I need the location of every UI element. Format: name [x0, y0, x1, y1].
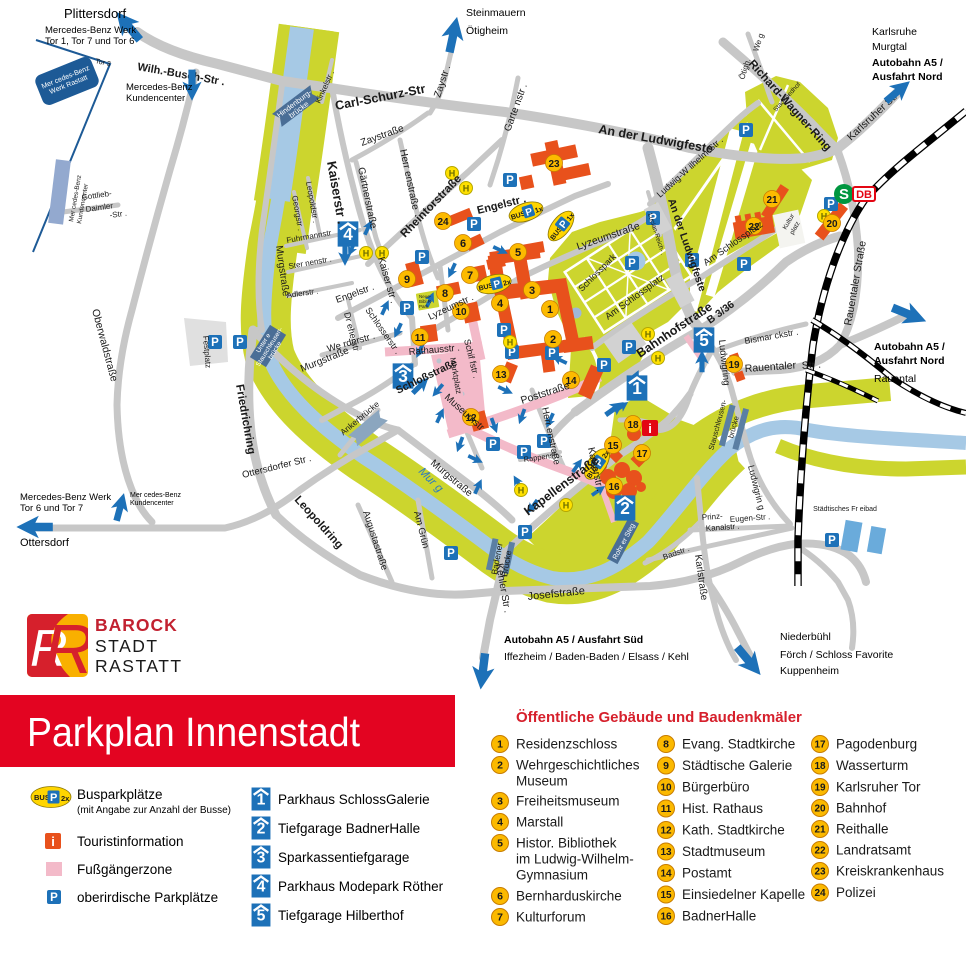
svg-text:Pagodenburg: Pagodenburg [836, 737, 917, 752]
svg-text:Kath. Stadtkirche: Kath. Stadtkirche [682, 823, 785, 838]
svg-text:Murgtal: Murgtal [872, 41, 907, 53]
svg-text:Förch / Schloss Favorite: Förch / Schloss Favorite [780, 649, 893, 661]
svg-text:20: 20 [814, 804, 826, 815]
svg-text:Str .: Str . [801, 359, 821, 372]
svg-text:23: 23 [814, 867, 826, 878]
svg-text:2: 2 [257, 820, 266, 837]
svg-text:Öffentliche Gebäude und Bauden: Öffentliche Gebäude und Baudenkmäler [516, 709, 802, 726]
svg-text:Städtisches Fr eibad: Städtisches Fr eibad [813, 506, 877, 513]
svg-text:9: 9 [663, 760, 669, 772]
svg-text:18: 18 [814, 761, 826, 772]
svg-text:11: 11 [415, 333, 426, 344]
svg-text:Kuppenheim: Kuppenheim [780, 665, 839, 677]
svg-text:Tor 6 und Tor 7: Tor 6 und Tor 7 [20, 503, 83, 514]
svg-text:DB: DB [856, 189, 872, 201]
svg-text:15: 15 [607, 441, 619, 452]
svg-text:Niederbühl: Niederbühl [780, 631, 831, 643]
svg-text:7: 7 [497, 912, 503, 924]
svg-text:7: 7 [467, 270, 473, 282]
svg-text:Steinmauern: Steinmauern [466, 7, 526, 19]
svg-text:Busparkplätze: Busparkplätze [77, 787, 163, 802]
svg-text:im Ludwig-Wilhelm-: im Ludwig-Wilhelm- [516, 852, 634, 867]
svg-text:Fußgängerzone: Fußgängerzone [77, 862, 172, 877]
svg-text:STADT: STADT [95, 636, 159, 656]
svg-text:P: P [50, 792, 57, 804]
svg-text:Tiefgarage Hilberthof: Tiefgarage Hilberthof [278, 908, 404, 923]
svg-text:13: 13 [660, 847, 672, 858]
svg-text:21: 21 [766, 195, 778, 206]
svg-text:Postamt: Postamt [682, 866, 732, 881]
svg-text:16: 16 [660, 912, 672, 923]
svg-text:24: 24 [437, 217, 449, 228]
svg-text:5: 5 [699, 330, 709, 350]
svg-text:3: 3 [497, 796, 503, 808]
svg-text:20: 20 [826, 219, 838, 230]
svg-text:18: 18 [627, 420, 639, 431]
svg-text:Kundencenter: Kundencenter [126, 93, 185, 104]
svg-text:Städtische Galerie: Städtische Galerie [682, 758, 792, 773]
svg-text:Gymnasium: Gymnasium [516, 868, 588, 883]
svg-text:Bahnhof: Bahnhof [836, 801, 887, 816]
svg-text:2: 2 [550, 334, 556, 346]
svg-text:Ötigheim: Ötigheim [466, 25, 508, 37]
svg-text:Sparkassentiefgarage: Sparkassentiefgarage [278, 850, 409, 865]
svg-text:1: 1 [632, 378, 642, 398]
svg-text:4: 4 [497, 298, 504, 310]
svg-text:Marstall: Marstall [516, 815, 563, 830]
svg-text:Kulturforum: Kulturforum [516, 910, 586, 925]
svg-text:3: 3 [529, 285, 535, 297]
svg-text:Rauental: Rauental [874, 373, 916, 385]
svg-text:Parkhaus Modepark Röther: Parkhaus Modepark Röther [278, 879, 444, 894]
svg-text:RASTATT: RASTATT [95, 656, 183, 676]
svg-text:8: 8 [442, 288, 448, 300]
svg-text:19: 19 [814, 783, 826, 794]
svg-text:17: 17 [814, 740, 826, 751]
svg-text:6: 6 [497, 891, 503, 903]
svg-text:Parkplan Innenstadt: Parkplan Innenstadt [27, 709, 361, 755]
svg-text:13: 13 [495, 370, 507, 381]
svg-text:Mercedes-Benz: Mercedes-Benz [126, 82, 193, 93]
svg-text:Karlsruher Tor: Karlsruher Tor [836, 780, 921, 795]
svg-text:Einsiedelner Kapelle: Einsiedelner Kapelle [682, 887, 805, 902]
svg-text:Autobahn A5 / Ausfahrt Süd: Autobahn A5 / Ausfahrt Süd [504, 634, 643, 646]
svg-text:Kreiskrankenhaus: Kreiskrankenhaus [836, 864, 944, 879]
svg-text:Evang. Stadtkirche: Evang. Stadtkirche [682, 737, 795, 752]
svg-text:5: 5 [515, 247, 521, 259]
svg-text:5: 5 [257, 907, 266, 924]
svg-text:Kundencenter: Kundencenter [130, 500, 174, 507]
svg-text:23: 23 [548, 159, 560, 170]
svg-text:16: 16 [608, 482, 620, 493]
svg-text:BAROCK: BAROCK [95, 615, 178, 635]
svg-text:6: 6 [460, 238, 466, 250]
svg-text:21: 21 [814, 825, 826, 836]
svg-text:Plittersdorf: Plittersdorf [64, 6, 127, 21]
svg-text:4: 4 [343, 224, 353, 244]
svg-text:Histor. Bibliothek: Histor. Bibliothek [516, 836, 617, 851]
svg-text:Mercedes-Benz Werk: Mercedes-Benz Werk [45, 25, 136, 36]
svg-text:Parkhaus SchlossGalerie: Parkhaus SchlossGalerie [278, 792, 430, 807]
svg-text:Wehrgeschichtliches: Wehrgeschichtliches [516, 758, 640, 773]
svg-text:BUS: BUS [34, 793, 50, 802]
svg-text:Mer cedes-Benz: Mer cedes-Benz [130, 492, 181, 499]
svg-text:Prinz-: Prinz- [702, 512, 724, 522]
svg-text:Polizei: Polizei [836, 885, 876, 900]
svg-text:i: i [648, 421, 652, 436]
svg-text:8: 8 [663, 739, 669, 751]
svg-text:Freiheitsmuseum: Freiheitsmuseum [516, 794, 620, 809]
svg-text:Stadtmuseum: Stadtmuseum [682, 844, 765, 859]
svg-text:Park: Park [419, 304, 429, 309]
svg-text:Museum: Museum [516, 774, 568, 789]
svg-text:1: 1 [497, 739, 503, 751]
svg-text:4: 4 [497, 817, 503, 829]
svg-text:10: 10 [660, 783, 672, 794]
svg-text:Autobahn A5 /: Autobahn A5 / [872, 57, 943, 69]
svg-text:Landratsamt: Landratsamt [836, 843, 911, 858]
svg-text:Ausfahrt Nord: Ausfahrt Nord [872, 71, 943, 83]
svg-text:Bürgerbüro: Bürgerbüro [682, 780, 750, 795]
svg-text:Ausfahrt Nord: Ausfahrt Nord [874, 355, 945, 367]
svg-text:S: S [839, 186, 849, 203]
svg-text:Wasserturm: Wasserturm [836, 758, 908, 773]
svg-text:Tor 1, Tor 7 und Tor 6: Tor 1, Tor 7 und Tor 6 [45, 36, 134, 47]
svg-text:2: 2 [620, 498, 630, 518]
svg-text:BadnerHalle: BadnerHalle [682, 909, 756, 924]
svg-text:Ottersdorf: Ottersdorf [20, 537, 70, 549]
svg-text:Karlsruhe: Karlsruhe [872, 26, 917, 38]
svg-text:22: 22 [814, 846, 826, 857]
svg-text:14: 14 [660, 869, 672, 880]
svg-text:1: 1 [257, 791, 266, 808]
svg-text:Tiefgarage BadnerHalle: Tiefgarage BadnerHalle [278, 821, 420, 836]
svg-text:oberirdische Parkplätze: oberirdische Parkplätze [77, 890, 218, 905]
svg-text:Hist. Rathaus: Hist. Rathaus [682, 801, 763, 816]
svg-text:12: 12 [660, 826, 672, 837]
svg-text:17: 17 [636, 449, 648, 460]
svg-text:9: 9 [404, 274, 410, 286]
svg-text:i: i [51, 834, 55, 849]
svg-text:11: 11 [661, 804, 672, 815]
svg-text:15: 15 [660, 890, 672, 901]
svg-text:Residenzschloss: Residenzschloss [516, 737, 618, 752]
svg-text:Iffezheim / Baden-Baden / Elsa: Iffezheim / Baden-Baden / Elsass / Kehl [504, 651, 689, 663]
svg-text:Touristinformation: Touristinformation [77, 834, 184, 849]
svg-text:Bernharduskirche: Bernharduskirche [516, 889, 622, 904]
svg-text:2: 2 [497, 760, 503, 772]
svg-text:2x: 2x [61, 794, 70, 803]
svg-text:1: 1 [547, 304, 553, 316]
svg-text:5: 5 [497, 838, 503, 850]
svg-text:(mit Angabe zur Anzahl der Bus: (mit Angabe zur Anzahl der Busse) [77, 805, 231, 816]
svg-text:Reithalle: Reithalle [836, 822, 889, 837]
svg-text:24: 24 [814, 888, 826, 899]
svg-text:Autobahn A5 /: Autobahn A5 / [874, 341, 945, 353]
svg-text:Mercedes-Benz Werk: Mercedes-Benz Werk [20, 492, 111, 503]
svg-text:3: 3 [257, 849, 266, 866]
svg-text:4: 4 [257, 878, 266, 895]
